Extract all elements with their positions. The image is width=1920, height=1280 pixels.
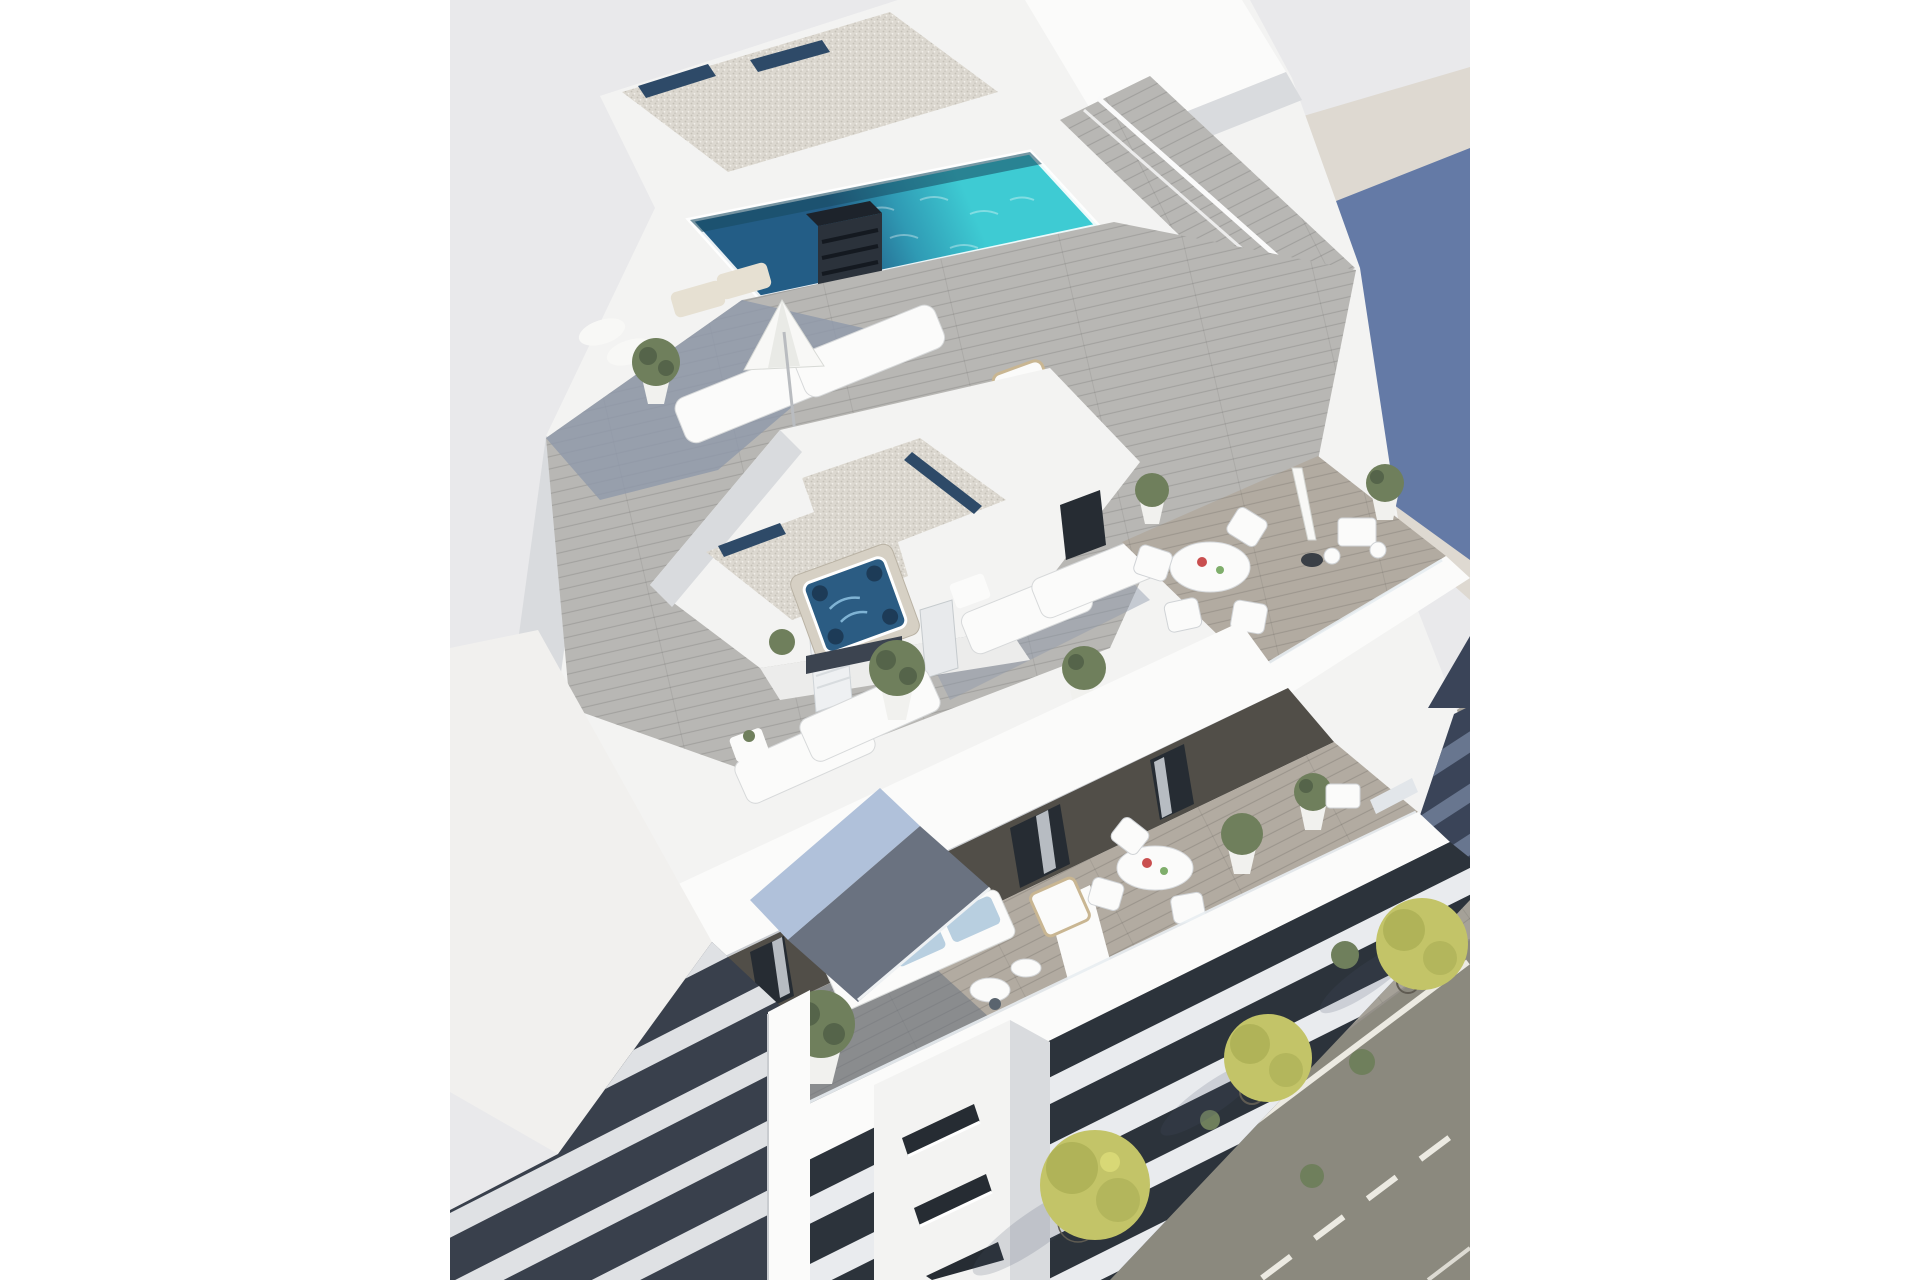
tree-foliage-dark — [876, 650, 896, 670]
plant-foliage-dark — [823, 1023, 845, 1045]
coffee-table — [970, 978, 1010, 1002]
tree-foliage-dark — [1269, 1053, 1303, 1087]
balcony-plant — [1349, 1049, 1375, 1075]
table-plate — [1160, 867, 1168, 875]
small-plant — [769, 629, 795, 655]
bowl — [989, 998, 1001, 1010]
balcony-plant — [1331, 941, 1359, 969]
plant-foliage-dark — [658, 360, 674, 376]
side-table — [1011, 959, 1041, 977]
penthouse-door — [920, 600, 958, 678]
bar-stool — [1324, 548, 1340, 564]
tree-foliage-dark — [899, 667, 917, 685]
table-plate — [1142, 858, 1152, 868]
bar-table — [1338, 518, 1376, 546]
balcony-plant — [1300, 1164, 1324, 1188]
tree-foliage — [869, 640, 925, 696]
plant-foliage — [632, 338, 680, 386]
bar-table — [1326, 784, 1360, 808]
round-dining-table — [1170, 542, 1250, 592]
table-plate — [1197, 557, 1207, 567]
tree-foliage-dark — [1068, 654, 1084, 670]
tree-foliage-dark — [1046, 1142, 1098, 1194]
render-canvas: Aerial 3D architectural rendering of a w… — [450, 0, 1470, 1280]
tree-foliage — [1062, 646, 1106, 690]
plant-foliage-dark — [1299, 779, 1313, 793]
tree-foliage-dark — [1423, 941, 1457, 975]
table-plate — [1216, 566, 1224, 574]
plant-foliage — [1366, 464, 1404, 502]
dining-chair — [1163, 597, 1202, 633]
plant-foliage-dark — [1370, 470, 1384, 484]
architectural-rendering: Aerial 3D architectural rendering of a w… — [450, 0, 1470, 1280]
table-plant — [743, 730, 755, 742]
tree-foliage-dark — [1383, 909, 1425, 951]
plant-foliage — [1221, 813, 1263, 855]
plant-foliage-dark — [639, 347, 657, 365]
tree-foliage-dark — [1096, 1178, 1140, 1222]
parasol-base — [1301, 553, 1323, 567]
tree-foliage-dark — [1230, 1024, 1270, 1064]
tree-foliage-light — [1100, 1152, 1120, 1172]
ground-floor-column — [768, 990, 810, 1280]
page: Aerial 3D architectural rendering of a w… — [0, 0, 1920, 1280]
bar-stool — [1370, 542, 1386, 558]
plant-foliage — [1135, 473, 1169, 507]
